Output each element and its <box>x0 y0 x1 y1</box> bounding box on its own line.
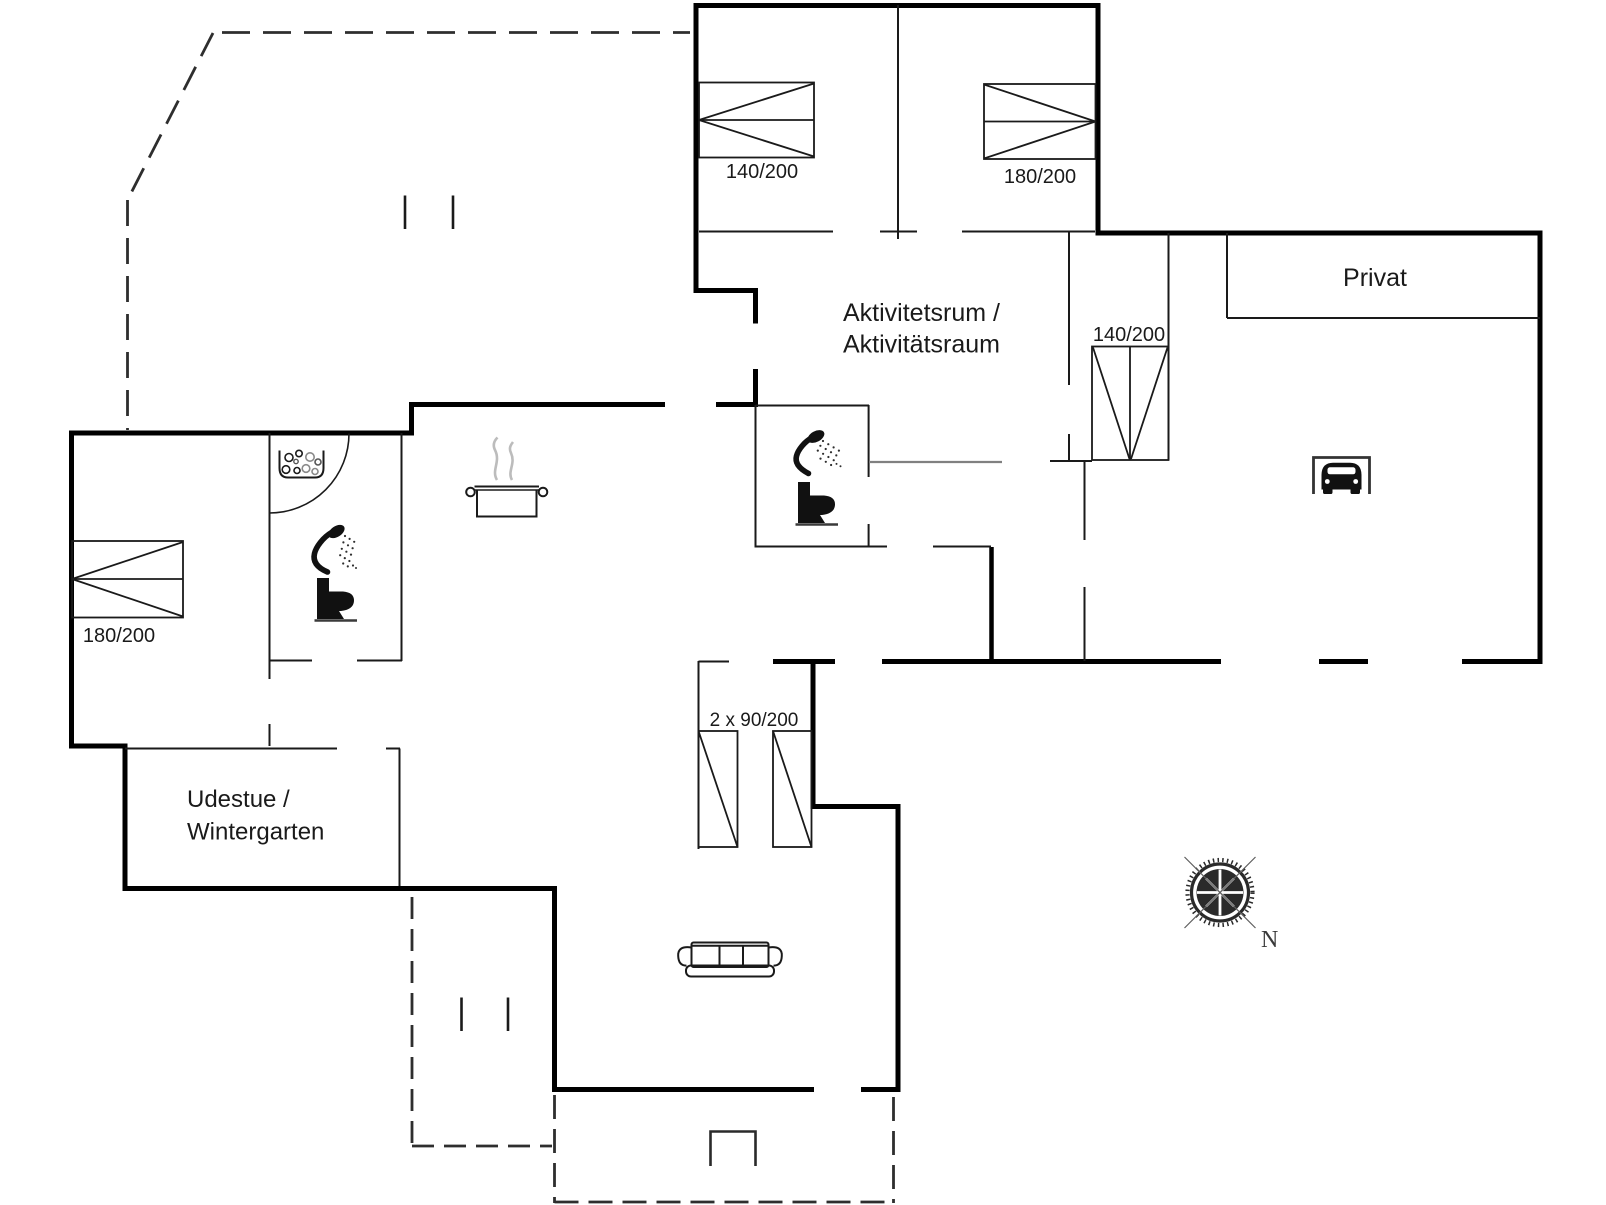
svg-text:Aktivitetsrum /: Aktivitetsrum / <box>843 299 1000 327</box>
svg-text:180/200: 180/200 <box>83 625 155 647</box>
svg-text:180/200: 180/200 <box>1004 166 1076 188</box>
svg-text:2 x 90/200: 2 x 90/200 <box>710 710 799 731</box>
svg-text:N: N <box>1261 927 1278 953</box>
svg-text:Privat: Privat <box>1343 264 1407 292</box>
svg-text:140/200: 140/200 <box>726 161 798 183</box>
svg-text:140/200: 140/200 <box>1093 324 1165 346</box>
svg-text:Udestue /: Udestue / <box>187 786 290 813</box>
svg-text:Aktivitätsraum: Aktivitätsraum <box>843 331 1000 359</box>
svg-text:Wintergarten: Wintergarten <box>187 819 324 846</box>
